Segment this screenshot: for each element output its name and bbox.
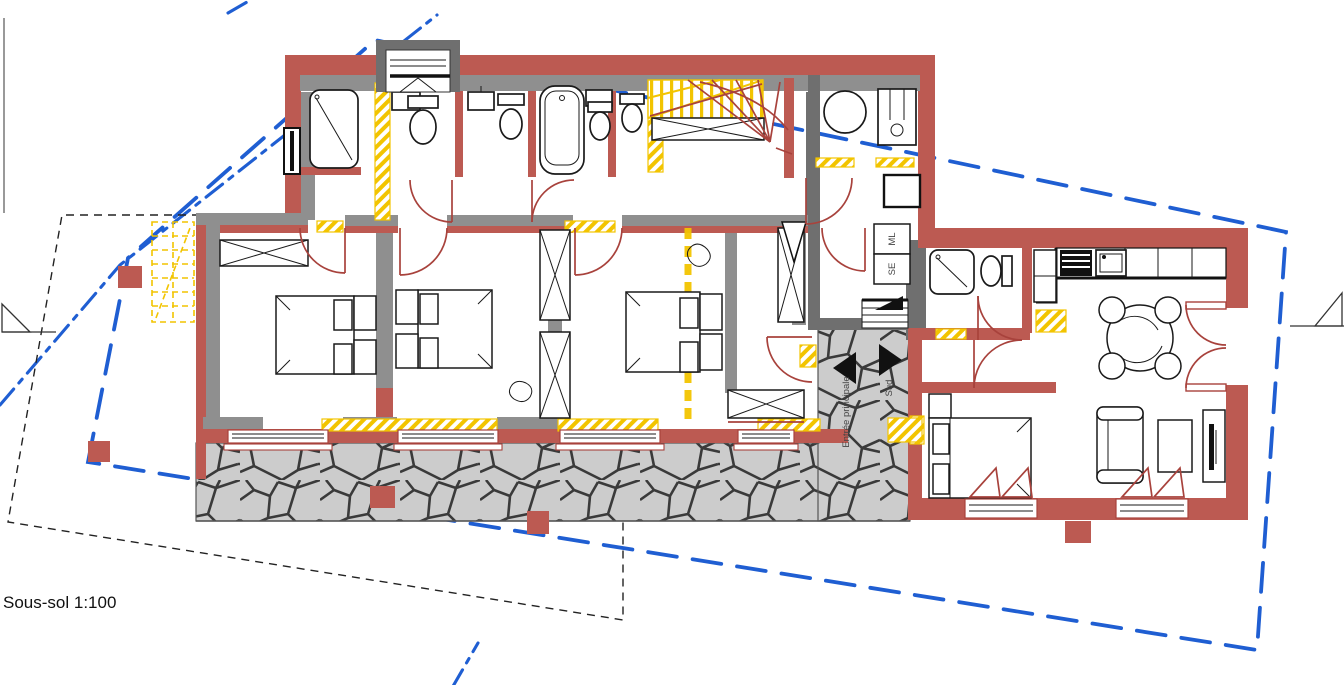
bed: [276, 296, 376, 374]
window: [734, 430, 798, 450]
door-hall: [822, 228, 865, 271]
pillar: [88, 441, 110, 462]
demolished-wall: [558, 419, 658, 431]
pillar: [1065, 521, 1091, 543]
demolished-wall: [816, 158, 854, 167]
hall-wall: [806, 92, 818, 215]
demolished-wall: [888, 418, 922, 442]
dryer-label: SE: [887, 263, 898, 276]
demolished-wall: [936, 329, 966, 339]
coffee-table: [1158, 420, 1192, 472]
demolished-wall: [758, 419, 820, 431]
demolished-wall: [1036, 310, 1066, 332]
exterior-wall-new: [196, 443, 206, 479]
window: [556, 430, 664, 450]
existing-wall: [497, 417, 557, 430]
bathroom-partition: [455, 91, 463, 177]
french-door: [1186, 302, 1226, 391]
nightstand: [929, 394, 951, 418]
floor-drain: [509, 381, 531, 401]
sofa: [1097, 407, 1143, 483]
bedroom-3: [540, 222, 806, 422]
existing-wall: [196, 213, 308, 225]
wardrobe: [220, 240, 308, 266]
pillar: [527, 511, 549, 534]
cooktop: [1060, 250, 1092, 276]
window: [224, 430, 332, 450]
boiler: [824, 91, 866, 133]
staircase: [648, 80, 792, 154]
pillar: [118, 266, 142, 288]
demolished-wall: [375, 83, 390, 220]
door-bedroom-2: [400, 228, 447, 275]
demolished-wall: [800, 345, 816, 367]
washbasin: [468, 92, 494, 110]
floor-plan-drawing: ML SE Entrée principale Sud: [0, 0, 1344, 685]
living-room: [1097, 407, 1225, 483]
demolished-wall: [565, 221, 615, 232]
existing-wall: [206, 225, 220, 430]
main-entrance-label: Entrée principale: [841, 376, 852, 447]
window: [394, 430, 502, 450]
partition-wall: [376, 233, 393, 388]
kitchen-right-wall: [1226, 248, 1248, 308]
toilet: [498, 94, 524, 139]
technical-room: ML SE: [824, 89, 920, 284]
alignment-line-bottom-segment: [452, 643, 478, 685]
bathroom-2: [468, 86, 524, 139]
laundry-area: ML SE: [874, 224, 910, 284]
bedroom-2: [396, 290, 532, 402]
alignment-line-top-segment: [228, 2, 247, 13]
partition-wall: [725, 233, 737, 393]
pillar: [370, 486, 395, 508]
bedroom-1: [220, 240, 376, 374]
hall-kitchen-wall: [1022, 245, 1032, 333]
section-marker-left: [2, 304, 56, 332]
toilet: [588, 102, 612, 140]
demolished-wall: [317, 221, 343, 232]
bathroom-partition: [528, 91, 536, 177]
water-heater: [878, 89, 916, 145]
wardrobe: [728, 390, 804, 422]
terrace-stone-paving: [196, 443, 848, 521]
wardrobe: [540, 332, 570, 418]
scale-label: Sous-sol 1:100: [3, 593, 116, 612]
toilet: [981, 256, 1012, 286]
bed: [626, 292, 722, 372]
south-label: Sud: [884, 380, 895, 397]
demolished-exterior-stair: [152, 222, 194, 322]
shower-room: [930, 250, 1012, 294]
floor-plan-page: ML SE Entrée principale Sud: [0, 0, 1344, 685]
section-marker-right: [1290, 293, 1344, 326]
bedroom4-top-wall: [908, 382, 1056, 393]
demolished-wall: [322, 419, 497, 431]
kitchen-sink: [1096, 250, 1126, 276]
door-bathroom-2: [410, 180, 452, 222]
kitchen-top-wall: [918, 228, 1248, 248]
dining-table: [1099, 297, 1181, 379]
tv-unit: [1203, 410, 1225, 482]
bathroom-3: [540, 86, 644, 174]
bathtub: [540, 86, 584, 174]
entry-porch: [376, 40, 460, 92]
door-bedroom-3: [575, 228, 622, 275]
toilet: [620, 94, 644, 132]
wc-1: [392, 86, 438, 144]
kitchen-right-wall: [1226, 385, 1248, 500]
existing-wall: [203, 417, 263, 430]
toilet: [408, 96, 438, 144]
door-hall-kitchen: [974, 340, 1022, 388]
bed: [396, 290, 492, 368]
wardrobe: [540, 230, 570, 320]
washing-machine-label: ML: [887, 232, 898, 245]
appliance: [884, 175, 920, 207]
exterior-wall-new: [196, 225, 206, 443]
demolished-wall: [876, 158, 914, 167]
